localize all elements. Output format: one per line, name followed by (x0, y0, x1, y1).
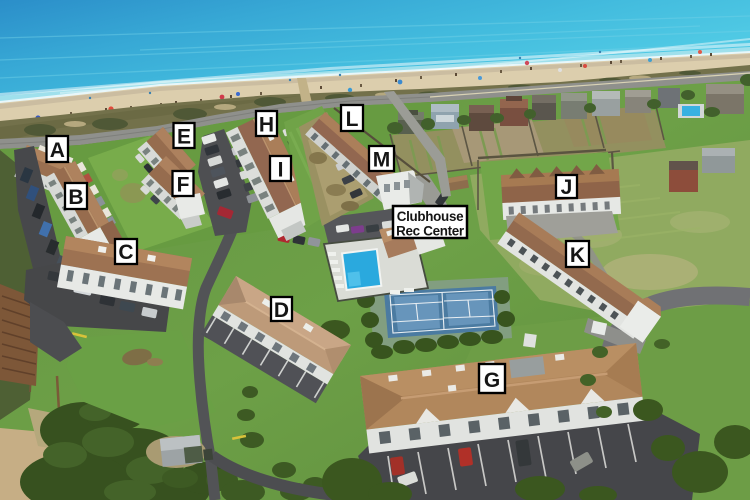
svg-text:H: H (259, 114, 274, 137)
svg-text:M: M (373, 149, 391, 172)
svg-text:B: B (68, 186, 83, 209)
svg-text:L: L (346, 108, 359, 131)
svg-text:E: E (177, 126, 191, 149)
svg-text:I: I (278, 159, 284, 182)
svg-text:K: K (570, 244, 585, 267)
svg-text:J: J (561, 176, 573, 199)
svg-text:D: D (274, 299, 289, 322)
svg-text:Rec Center: Rec Center (396, 223, 465, 238)
svg-text:G: G (484, 369, 500, 392)
svg-text:F: F (177, 174, 190, 197)
svg-text:A: A (50, 139, 65, 162)
svg-text:C: C (118, 241, 133, 264)
svg-text:Clubhouse: Clubhouse (397, 209, 463, 224)
